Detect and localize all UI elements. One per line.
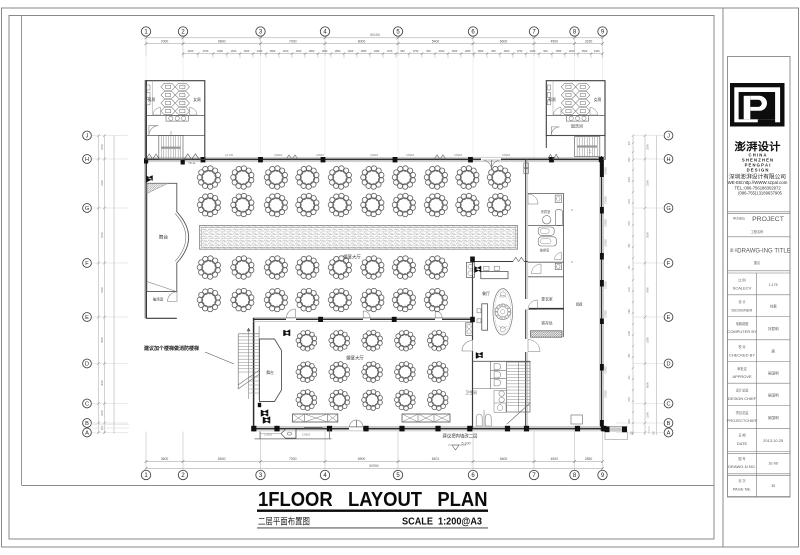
- svg-text:4200: 4200: [188, 49, 194, 53]
- svg-text:1750: 1750: [517, 49, 523, 53]
- svg-text:2200: 2200: [646, 412, 650, 418]
- svg-text:储藏: 储藏: [576, 302, 583, 307]
- svg-text:SCALECV: SCALECV: [733, 286, 752, 291]
- svg-text:寄存处: 寄存处: [541, 321, 553, 326]
- svg-text:1690: 1690: [217, 49, 223, 53]
- svg-text:餐厅: 餐厅: [482, 290, 490, 296]
- svg-text:1200: 1200: [569, 49, 575, 53]
- svg-text:1100: 1100: [283, 49, 289, 53]
- svg-text:50950: 50950: [369, 464, 379, 468]
- svg-text:C0918: C0918: [370, 153, 378, 157]
- svg-text:吴国明: 吴国明: [768, 392, 779, 397]
- svg-text:女厕: 女厕: [193, 97, 201, 102]
- svg-text:E: E: [85, 315, 89, 321]
- svg-text:9800: 9800: [218, 39, 226, 43]
- svg-text:DATE: DATE: [737, 441, 748, 446]
- svg-text:图名: 图名: [754, 260, 760, 265]
- svg-text:5260: 5260: [646, 337, 650, 343]
- svg-text:1520: 1520: [629, 157, 631, 163]
- svg-text:C0918: C0918: [274, 153, 282, 157]
- svg-text:DESIGN CHIEF: DESIGN CHIEF: [728, 396, 757, 401]
- svg-text:DESIGNER: DESIGNER: [732, 307, 753, 312]
- svg-text:2500: 2500: [100, 144, 104, 150]
- svg-text:H: H: [85, 157, 89, 163]
- svg-text:1600: 1600: [231, 49, 237, 53]
- svg-text:C0918: C0918: [605, 310, 608, 318]
- svg-text:A: A: [85, 431, 89, 437]
- svg-text:J: J: [86, 134, 89, 140]
- svg-text:1:175: 1:175: [769, 283, 778, 287]
- svg-text:DRAWG-N NO.: DRAWG-N NO.: [728, 464, 756, 469]
- svg-text:澎湃设计: 澎湃设计: [735, 140, 782, 153]
- svg-text:2013.10.25: 2013.10.25: [763, 438, 784, 443]
- svg-text:1400: 1400: [348, 49, 354, 53]
- svg-text:5400: 5400: [432, 39, 440, 43]
- svg-text:1800: 1800: [478, 49, 484, 53]
- svg-text:5050: 5050: [100, 232, 104, 238]
- svg-text:E: E: [667, 315, 671, 321]
- svg-text:2400: 2400: [594, 49, 600, 53]
- svg-text:1FLOOR LAYOUT PLAN: 1FLOOR LAYOUT PLAN: [258, 489, 488, 511]
- svg-text:卫生间: 卫生间: [465, 390, 477, 395]
- svg-text:男厕: 男厕: [548, 97, 556, 102]
- svg-text:2400: 2400: [439, 49, 445, 53]
- svg-text:C: C: [85, 402, 89, 408]
- svg-text:C0918: C0918: [605, 196, 608, 204]
- svg-text:甲方单位: 甲方单位: [733, 216, 745, 221]
- svg-text:F: F: [85, 261, 89, 267]
- svg-text:(086-755)13189637905: (086-755)13189637905: [738, 191, 782, 196]
- svg-text:6600: 6600: [646, 382, 650, 388]
- svg-text:4500: 4500: [550, 39, 558, 43]
- svg-text:900: 900: [426, 49, 431, 53]
- svg-text:上: 上: [588, 148, 591, 153]
- svg-text:电脑制图: 电脑制图: [736, 321, 749, 326]
- svg-text:PROJECT: PROJECT: [752, 216, 784, 223]
- svg-text:按摩房: 按摩房: [540, 248, 550, 253]
- svg-text:J: J: [667, 134, 670, 140]
- svg-text:7000: 7000: [289, 39, 297, 43]
- svg-text:8401: 8401: [432, 457, 440, 461]
- svg-text:2300: 2300: [646, 180, 650, 186]
- svg-text:项目总监: 项目总监: [736, 410, 750, 415]
- svg-text:1280: 1280: [465, 49, 471, 53]
- svg-text:1700: 1700: [387, 49, 393, 53]
- svg-text:4000: 4000: [100, 380, 104, 386]
- svg-text:H: H: [666, 157, 670, 163]
- svg-text:F: F: [667, 261, 671, 267]
- svg-text:婚宴大厅: 婚宴大厅: [346, 355, 364, 362]
- svg-text:2050: 2050: [100, 410, 104, 416]
- svg-text:900: 900: [543, 49, 548, 53]
- svg-text:A: A: [667, 431, 671, 437]
- svg-text:B: B: [667, 421, 671, 427]
- svg-text:1400: 1400: [530, 49, 536, 53]
- svg-text:950: 950: [491, 49, 496, 53]
- svg-text:设 计: 设 计: [738, 299, 746, 304]
- svg-text:CHECKED BY: CHECKED BY: [729, 352, 755, 357]
- svg-text:C0918: C0918: [605, 281, 608, 289]
- svg-text:C0918: C0918: [454, 153, 462, 157]
- svg-text:960: 960: [400, 49, 405, 53]
- svg-text:刘君: 刘君: [770, 304, 778, 309]
- svg-text:2300: 2300: [100, 180, 104, 186]
- svg-text:5400: 5400: [100, 287, 104, 293]
- svg-text:C0918: C0918: [605, 366, 608, 374]
- svg-text:图 号: 图 号: [738, 456, 745, 461]
- svg-text:女厕: 女厕: [594, 97, 602, 102]
- svg-text:更衣室: 更衣室: [541, 297, 553, 302]
- svg-text:日 期: 日 期: [738, 433, 745, 438]
- svg-text:8000: 8000: [358, 39, 366, 43]
- svg-text:PAGE NE.: PAGE NE.: [733, 486, 752, 491]
- svg-text:校 对: 校 对: [738, 344, 746, 349]
- svg-text:G: G: [85, 206, 89, 212]
- svg-text:C0918: C0918: [316, 153, 324, 157]
- svg-text:C0918: C0918: [605, 167, 608, 175]
- svg-text:贵宾室: 贵宾室: [541, 209, 551, 214]
- svg-text:二层平面布置图: 二层平面布置图: [258, 516, 310, 527]
- svg-text:婚宴大厅: 婚宴大厅: [343, 254, 361, 261]
- svg-text:1240: 1240: [629, 330, 631, 336]
- svg-text:7000: 7000: [161, 39, 169, 43]
- svg-text:C0918: C0918: [264, 432, 272, 436]
- svg-text:C0918: C0918: [605, 239, 608, 247]
- svg-text:1500: 1500: [582, 49, 588, 53]
- svg-text:50150: 50150: [370, 33, 380, 37]
- svg-text:D: D: [85, 362, 89, 368]
- svg-text:吴国明: 吴国明: [768, 415, 779, 420]
- svg-text:4650: 4650: [100, 337, 104, 343]
- svg-text:设计总监: 设计总监: [736, 388, 750, 393]
- svg-text:7000: 7000: [289, 457, 297, 461]
- svg-text:C1735: C1735: [225, 153, 233, 157]
- svg-text:建议把内墙改二层: 建议把内墙改二层: [442, 433, 478, 440]
- svg-text:刘君明: 刘君明: [768, 326, 779, 331]
- svg-text:1500: 1500: [629, 220, 631, 226]
- svg-text:吴国明: 吴国明: [768, 370, 779, 375]
- svg-text:C0918: C0918: [605, 390, 608, 398]
- svg-text:DRAWG-ING TITLE: DRAWG-ING TITLE: [737, 249, 790, 255]
- svg-text:1500: 1500: [452, 49, 458, 53]
- svg-text:1600: 1600: [322, 49, 328, 53]
- svg-text:D: D: [666, 362, 670, 368]
- svg-text:工程名称: 工程名称: [751, 229, 765, 234]
- svg-text:C0918: C0918: [406, 153, 414, 157]
- svg-text:盥洗间: 盥洗间: [571, 123, 583, 129]
- svg-text:1800: 1800: [629, 198, 631, 204]
- svg-text:1800: 1800: [335, 49, 341, 53]
- svg-text:1600: 1600: [504, 49, 510, 53]
- svg-text:1300: 1300: [257, 49, 263, 53]
- svg-text:1400: 1400: [629, 418, 631, 424]
- svg-text:4500: 4500: [550, 457, 558, 461]
- svg-text:COMPUTER BY: COMPUTER BY: [727, 329, 757, 334]
- svg-text:G: G: [666, 206, 670, 212]
- svg-text:1800: 1800: [270, 49, 276, 53]
- svg-text:3600: 3600: [161, 457, 169, 461]
- svg-text:比 例: 比 例: [738, 277, 745, 282]
- svg-text:1850: 1850: [361, 49, 367, 53]
- svg-text:1750: 1750: [413, 49, 419, 53]
- svg-text:C0918: C0918: [302, 432, 310, 436]
- svg-text:2260: 2260: [629, 176, 631, 182]
- svg-text:2850: 2850: [585, 457, 593, 461]
- svg-text:8600: 8600: [218, 457, 226, 461]
- svg-text:周: 周: [771, 349, 775, 354]
- svg-text:7#-1L: 7#-1L: [188, 161, 196, 165]
- svg-text:建议加个楼梯做消防楼梯: 建议加个楼梯做消防楼梯: [143, 345, 199, 352]
- svg-text:5400: 5400: [646, 287, 650, 293]
- svg-text:D E S I G N: D E S I G N: [747, 168, 769, 173]
- svg-text:1100: 1100: [629, 286, 631, 292]
- svg-text:2750: 2750: [203, 49, 209, 53]
- svg-text:PROJECTCHIEF: PROJECTCHIEF: [727, 418, 758, 423]
- svg-text:2500: 2500: [646, 144, 650, 150]
- svg-text:1800: 1800: [309, 49, 315, 53]
- svg-text:6900: 6900: [358, 457, 366, 461]
- svg-text:APPROVE: APPROVE: [732, 374, 752, 379]
- svg-text:1460: 1460: [629, 308, 631, 314]
- svg-text:1E-06: 1E-06: [768, 462, 778, 466]
- svg-text:舞台: 舞台: [159, 234, 169, 241]
- svg-text:催场室: 催场室: [153, 297, 164, 302]
- svg-text:1480: 1480: [374, 49, 380, 53]
- svg-text:5500: 5500: [646, 232, 650, 238]
- svg-text:B: B: [85, 421, 89, 427]
- svg-text:C0918: C0918: [502, 153, 510, 157]
- svg-text:3150: 3150: [585, 39, 593, 43]
- svg-text:35: 35: [771, 484, 775, 488]
- svg-text:C: C: [666, 402, 670, 408]
- svg-text:950: 950: [100, 425, 104, 430]
- svg-text:男厕: 男厕: [148, 97, 156, 102]
- svg-text:1500: 1500: [629, 396, 631, 402]
- svg-text:WE-EB:nttp.//WWW.szpal.com: WE-EB:nttp.//WWW.szpal.com: [728, 180, 788, 185]
- svg-text:舞台: 舞台: [266, 370, 274, 375]
- svg-text:C0918: C0918: [605, 219, 608, 227]
- svg-text:SCALE 1:200@A3: SCALE 1:200@A3: [402, 517, 482, 528]
- svg-text:审批定: 审批定: [737, 366, 747, 371]
- svg-text:6600: 6600: [500, 457, 508, 461]
- svg-text:6600: 6600: [500, 39, 508, 43]
- svg-text:1400: 1400: [296, 49, 302, 53]
- svg-text:页 次: 页 次: [738, 478, 746, 483]
- svg-text:1600: 1600: [244, 49, 250, 53]
- svg-text:1850: 1850: [556, 49, 562, 53]
